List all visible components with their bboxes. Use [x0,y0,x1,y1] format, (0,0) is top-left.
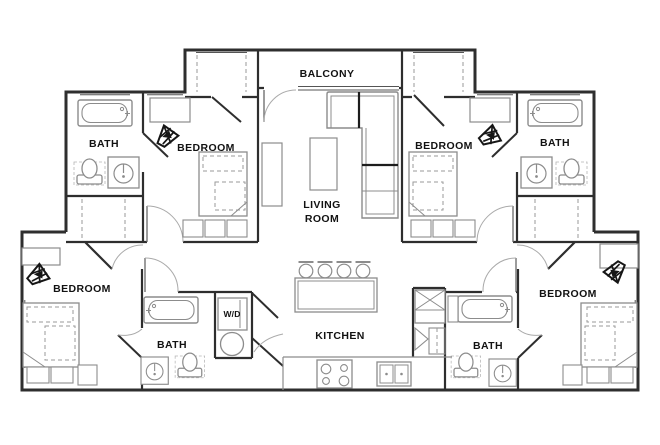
bedroom-bottom-left-label: BEDROOM [53,283,111,295]
bath-bottom-right-label: BATH [473,340,503,352]
linen-cabinet-icon [448,296,458,322]
balcony-label: BALCONY [300,68,355,80]
desk-icon [470,98,510,122]
bedroom-bottom-left-furniture [22,248,97,385]
tv-stand-icon [262,143,282,206]
floor-plan-svg: BALCONY BATH BEDROOM BEDROOM BATH LIVING… [0,0,660,445]
toilet-icon [556,159,587,185]
living-room-label-line1: LIVING [303,199,340,211]
bedroom-top-right-label: BEDROOM [415,140,473,152]
dresser-icon [27,365,97,385]
washer-dryer-icon [218,298,247,356]
sink-icon [489,359,516,386]
stove-icon [317,360,352,388]
sink-icon [141,357,168,384]
dresser-icon [411,220,475,237]
bedroom-top-left-furniture [150,98,247,237]
kitchen-sink-icon [377,362,411,386]
bedroom-bottom-right-label: BEDROOM [539,288,597,300]
bedroom-top-left-label: BEDROOM [177,142,235,154]
desk-icon [150,98,190,122]
bathtub-icon [458,296,512,322]
desk-chair-icon [27,263,52,287]
nightstand-icon [78,365,97,385]
laundry-fixtures [218,298,247,356]
refrigerator-icon [415,290,445,323]
laundry-label: W/D [223,309,240,319]
balcony-slider-rail [298,87,399,91]
bathtub-icon [144,297,198,323]
pantry-icon [415,328,445,354]
bath-bottom-left-label: BATH [157,339,187,351]
desk-icon [22,248,60,265]
dresser-icon [183,220,247,237]
sink-icon [108,157,139,188]
bath-top-left-label: BATH [89,138,119,150]
kitchen-label: KITCHEN [315,330,364,342]
desk-chair-icon [154,123,180,148]
living-room-label-line2: ROOM [305,213,339,225]
bedroom-top-right-furniture [409,98,510,237]
floor-plan-page: BALCONY BATH BEDROOM BEDROOM BATH LIVING… [0,0,660,445]
bed-icon [581,303,637,367]
kitchen-fixtures [283,262,452,390]
coffee-table-icon [310,138,337,190]
kitchen-island-icon [295,278,377,312]
bathtub-icon [528,100,582,126]
toilet-icon [175,353,204,378]
dresser-icon [563,365,633,385]
bed-icon [199,152,247,216]
bed-icon [409,152,457,216]
bed-icon [23,303,79,367]
sink-icon [521,157,552,188]
toilet-icon [74,159,105,185]
bar-stools-icon [299,262,371,278]
desk-chair-icon [478,123,504,149]
bath-top-right-label: BATH [540,137,570,149]
bathtub-icon [78,100,132,126]
counter-edge [283,357,452,390]
toilet-icon [451,353,480,378]
bedroom-bottom-right-furniture [563,244,638,385]
nightstand-icon [563,365,582,385]
